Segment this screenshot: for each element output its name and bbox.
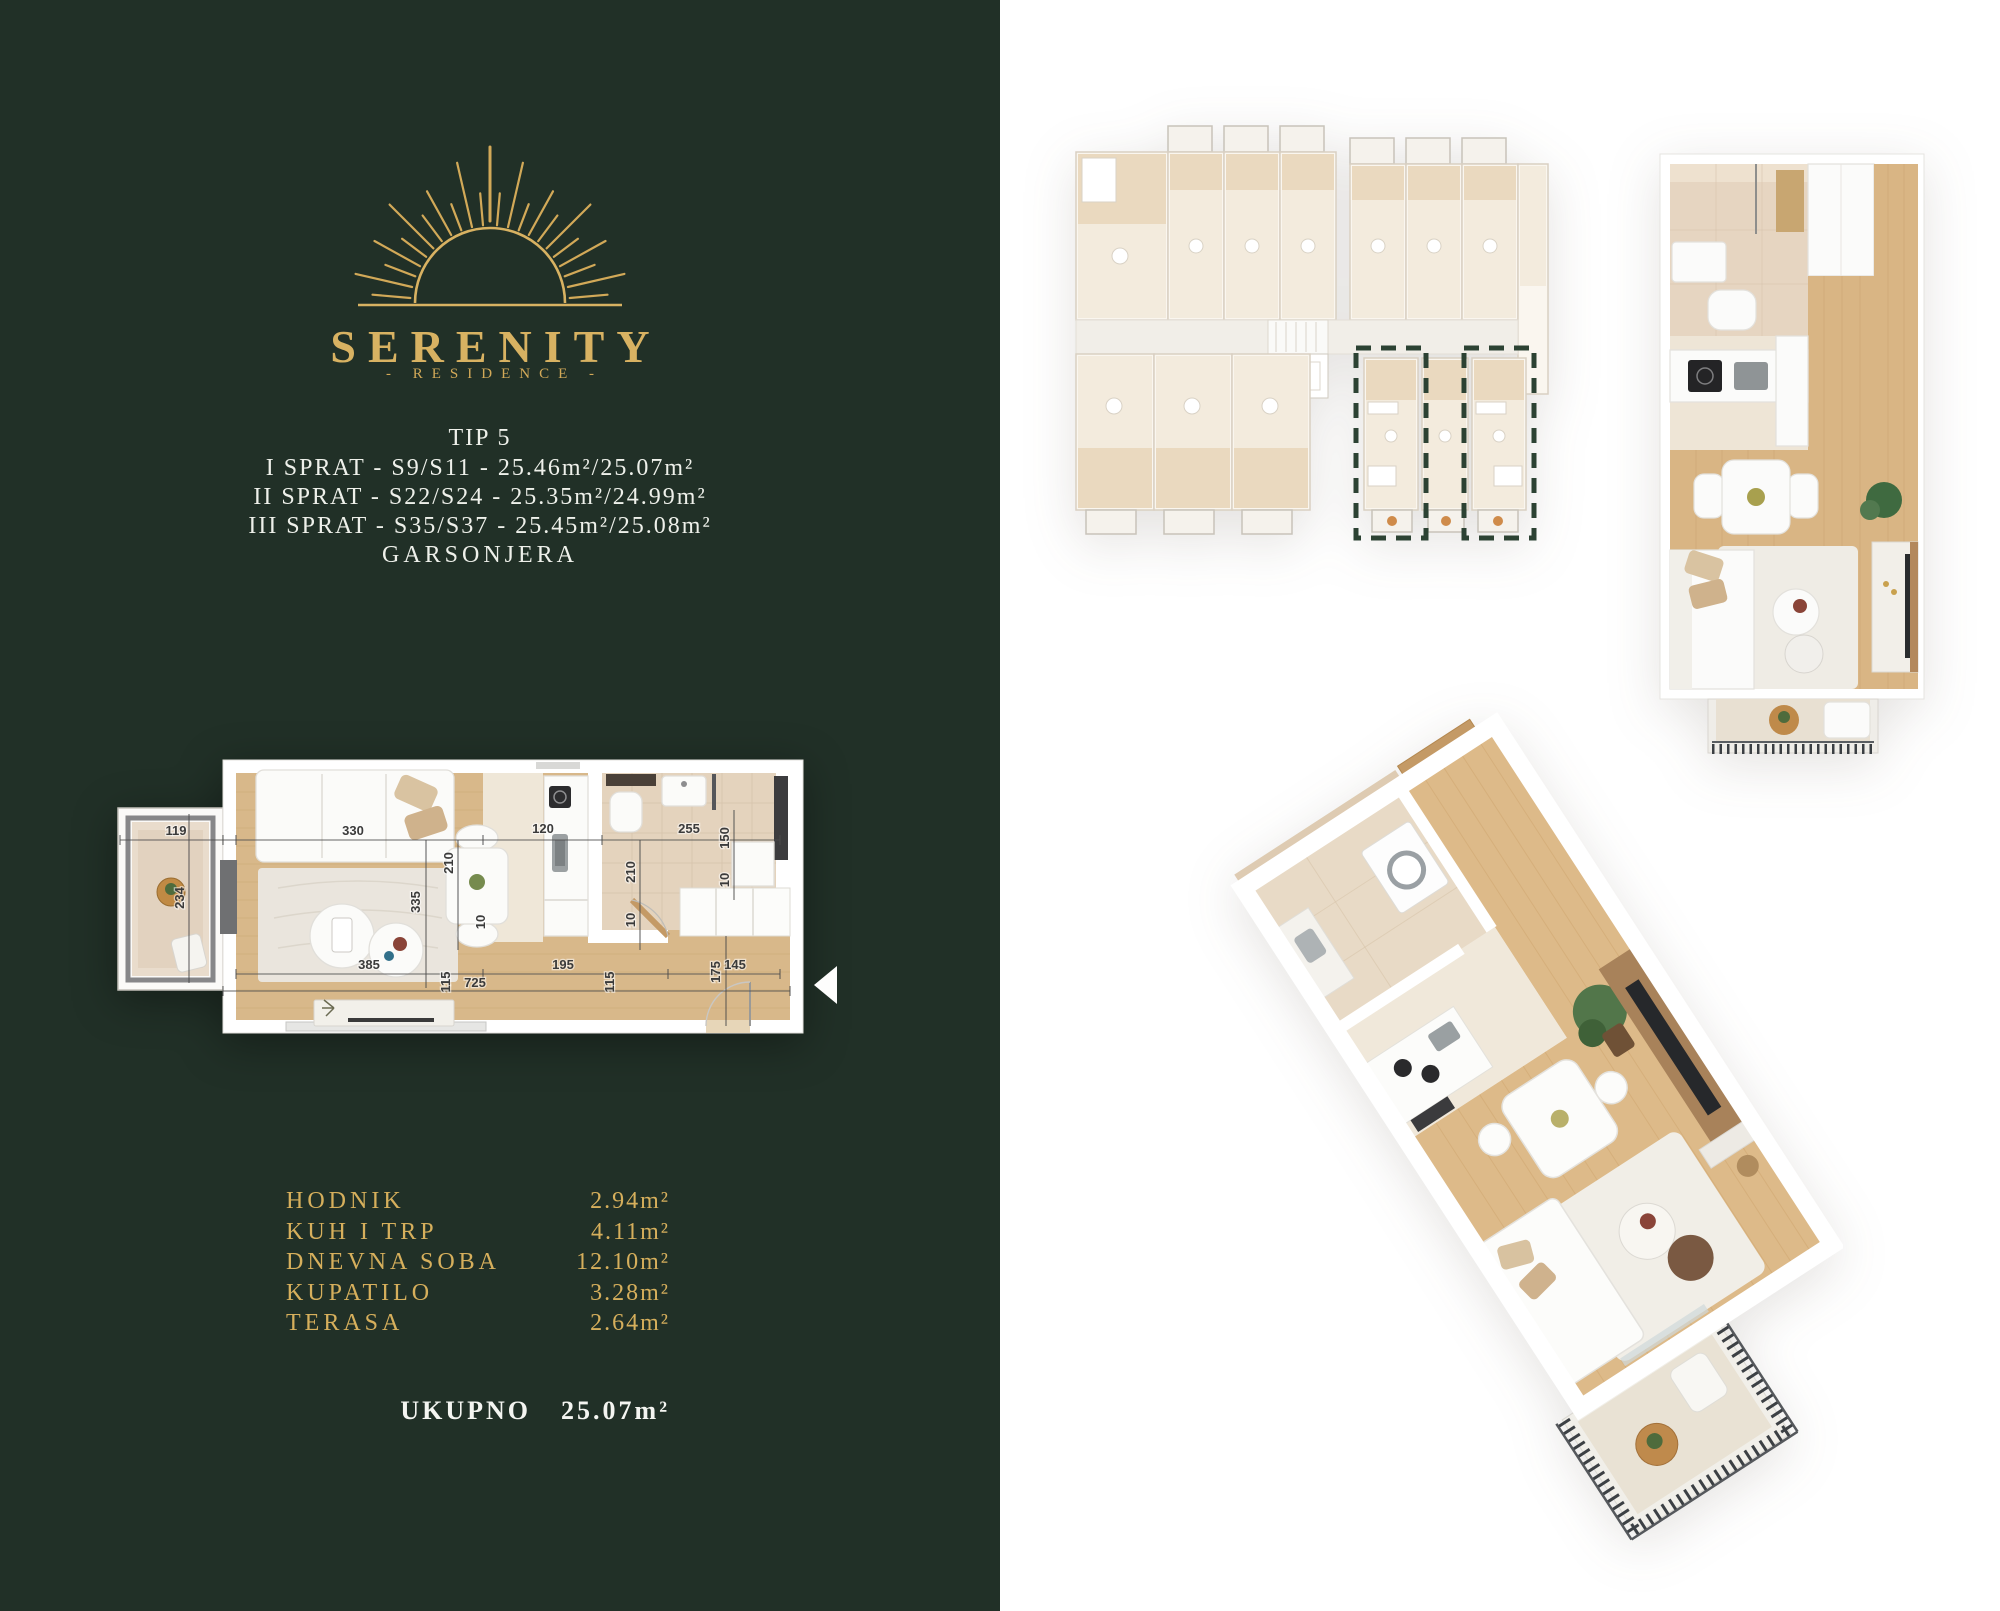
towel-rail: [712, 774, 716, 810]
entry-opening: [706, 1020, 750, 1033]
svg-text:385: 385: [358, 957, 380, 972]
area-value: 4.11m²: [591, 1217, 670, 1248]
unit-line-3: III SPRAT - S35/S37 - 25.45m²/25.08m²: [150, 512, 810, 541]
duct-shaft: [774, 776, 788, 860]
area-value: 12.10m²: [576, 1247, 670, 1278]
wall-bath-hall: [588, 930, 668, 943]
svg-text:234: 234: [172, 886, 187, 908]
total-label: UKUPNO: [400, 1396, 531, 1426]
table-plant: [469, 874, 485, 890]
floorplan-2d-figure: 119 330 120 255 234 210 335 210 150 10 1…: [108, 750, 812, 1044]
tv-screen: [1905, 554, 1910, 658]
area-value: 2.94m²: [590, 1186, 670, 1217]
svg-text:175: 175: [708, 961, 723, 983]
svg-text:150: 150: [717, 827, 732, 849]
area-value: 2.64m²: [590, 1308, 670, 1339]
sunrise-logo-icon: [320, 120, 660, 320]
building-floorplan-figure: [1062, 96, 1560, 542]
left-panel: SERENITY - RESIDENCE - TIP 5 I SPRAT - S…: [0, 0, 1000, 1611]
wardrobe: [680, 888, 790, 936]
dining-chair: [1694, 474, 1724, 518]
unit-type-label: GARSONJERA: [150, 541, 810, 570]
table-decor: [1747, 488, 1765, 506]
bath-shelf: [606, 774, 656, 786]
svg-text:330: 330: [342, 823, 364, 838]
total-row: UKUPNO 25.07m²: [286, 1396, 670, 1426]
isometric-render-figure: [1148, 688, 1843, 1573]
toilet: [610, 792, 642, 832]
dining-chair: [1788, 474, 1818, 518]
corner-cabinet: [732, 842, 774, 886]
unit-info-block: TIP 5 I SPRAT - S9/S11 - 25.46m²/25.07m²…: [150, 424, 810, 570]
garsonjera-units: [1364, 358, 1526, 532]
svg-text:119: 119: [166, 823, 187, 838]
svg-text:10: 10: [623, 913, 638, 927]
tv-console: [314, 1000, 454, 1026]
prev-arrow-icon[interactable]: [814, 966, 837, 1004]
tv-screen: [348, 1018, 434, 1022]
bottom-row-units: [1076, 354, 1310, 534]
svg-text:255: 255: [678, 821, 700, 836]
svg-text:115: 115: [438, 972, 453, 993]
svg-text:120: 120: [532, 821, 554, 836]
area-label: KUH I TRP: [286, 1217, 438, 1248]
svg-text:335: 335: [408, 891, 423, 913]
brochure-page: SERENITY - RESIDENCE - TIP 5 I SPRAT - S…: [0, 0, 2000, 1611]
brand-tagline: - RESIDENCE -: [250, 366, 730, 383]
area-table: HODNIK 2.94m² KUH I TRP 4.11m² DNEVNA SO…: [286, 1186, 670, 1339]
svg-text:210: 210: [623, 861, 638, 883]
area-label: HODNIK: [286, 1186, 405, 1217]
terrace-slider-door: [220, 860, 237, 934]
bath-sink: [1672, 242, 1726, 282]
area-label: KUPATILO: [286, 1278, 433, 1309]
area-row: KUPATILO 3.28m²: [286, 1278, 670, 1309]
svg-text:10: 10: [717, 873, 732, 887]
coffee-table-small: [1785, 635, 1823, 673]
unit-line-1: I SPRAT - S9/S11 - 25.46m²/25.07m²: [150, 454, 810, 483]
area-row: HODNIK 2.94m²: [286, 1186, 670, 1217]
area-value: 3.28m²: [590, 1278, 670, 1309]
area-label: DNEVNA SOBA: [286, 1247, 500, 1278]
total-value: 25.07m²: [561, 1396, 670, 1426]
area-row: DNEVNA SOBA 12.10m²: [286, 1247, 670, 1278]
unit-title: TIP 5: [150, 424, 810, 453]
unit-line-2: II SPRAT - S22/S24 - 25.35m²/24.99m²: [150, 483, 810, 512]
toilet: [1708, 290, 1756, 330]
svg-text:210: 210: [441, 852, 456, 874]
area-row: TERASA 2.64m²: [286, 1308, 670, 1339]
area-row: KUH I TRP 4.11m²: [286, 1217, 670, 1248]
topdown-render-figure: [1656, 150, 1932, 768]
cooktop: [1688, 360, 1722, 392]
td-bathroom: [1670, 164, 1808, 336]
sun-rays: [356, 147, 625, 298]
bath-sink: [662, 776, 706, 806]
svg-text:10: 10: [473, 915, 488, 929]
flower-decor: [393, 937, 407, 951]
shower-bench: [1776, 170, 1804, 232]
area-label: TERASA: [286, 1308, 403, 1339]
wall-kitchen-bath: [588, 773, 602, 942]
svg-text:725: 725: [464, 975, 486, 990]
iso-apartment: [1209, 707, 1843, 1539]
svg-text:195: 195: [552, 957, 574, 972]
dining-chair: [456, 825, 498, 851]
kitchen-sink: [1734, 362, 1768, 390]
svg-text:145: 145: [724, 957, 746, 972]
coffee-table: [1773, 589, 1819, 635]
right-panel: [1000, 0, 2000, 1611]
svg-text:115: 115: [602, 972, 617, 993]
td-kitchen: [1670, 336, 1808, 450]
cooktop: [549, 786, 571, 808]
sun-arc: [415, 228, 565, 303]
